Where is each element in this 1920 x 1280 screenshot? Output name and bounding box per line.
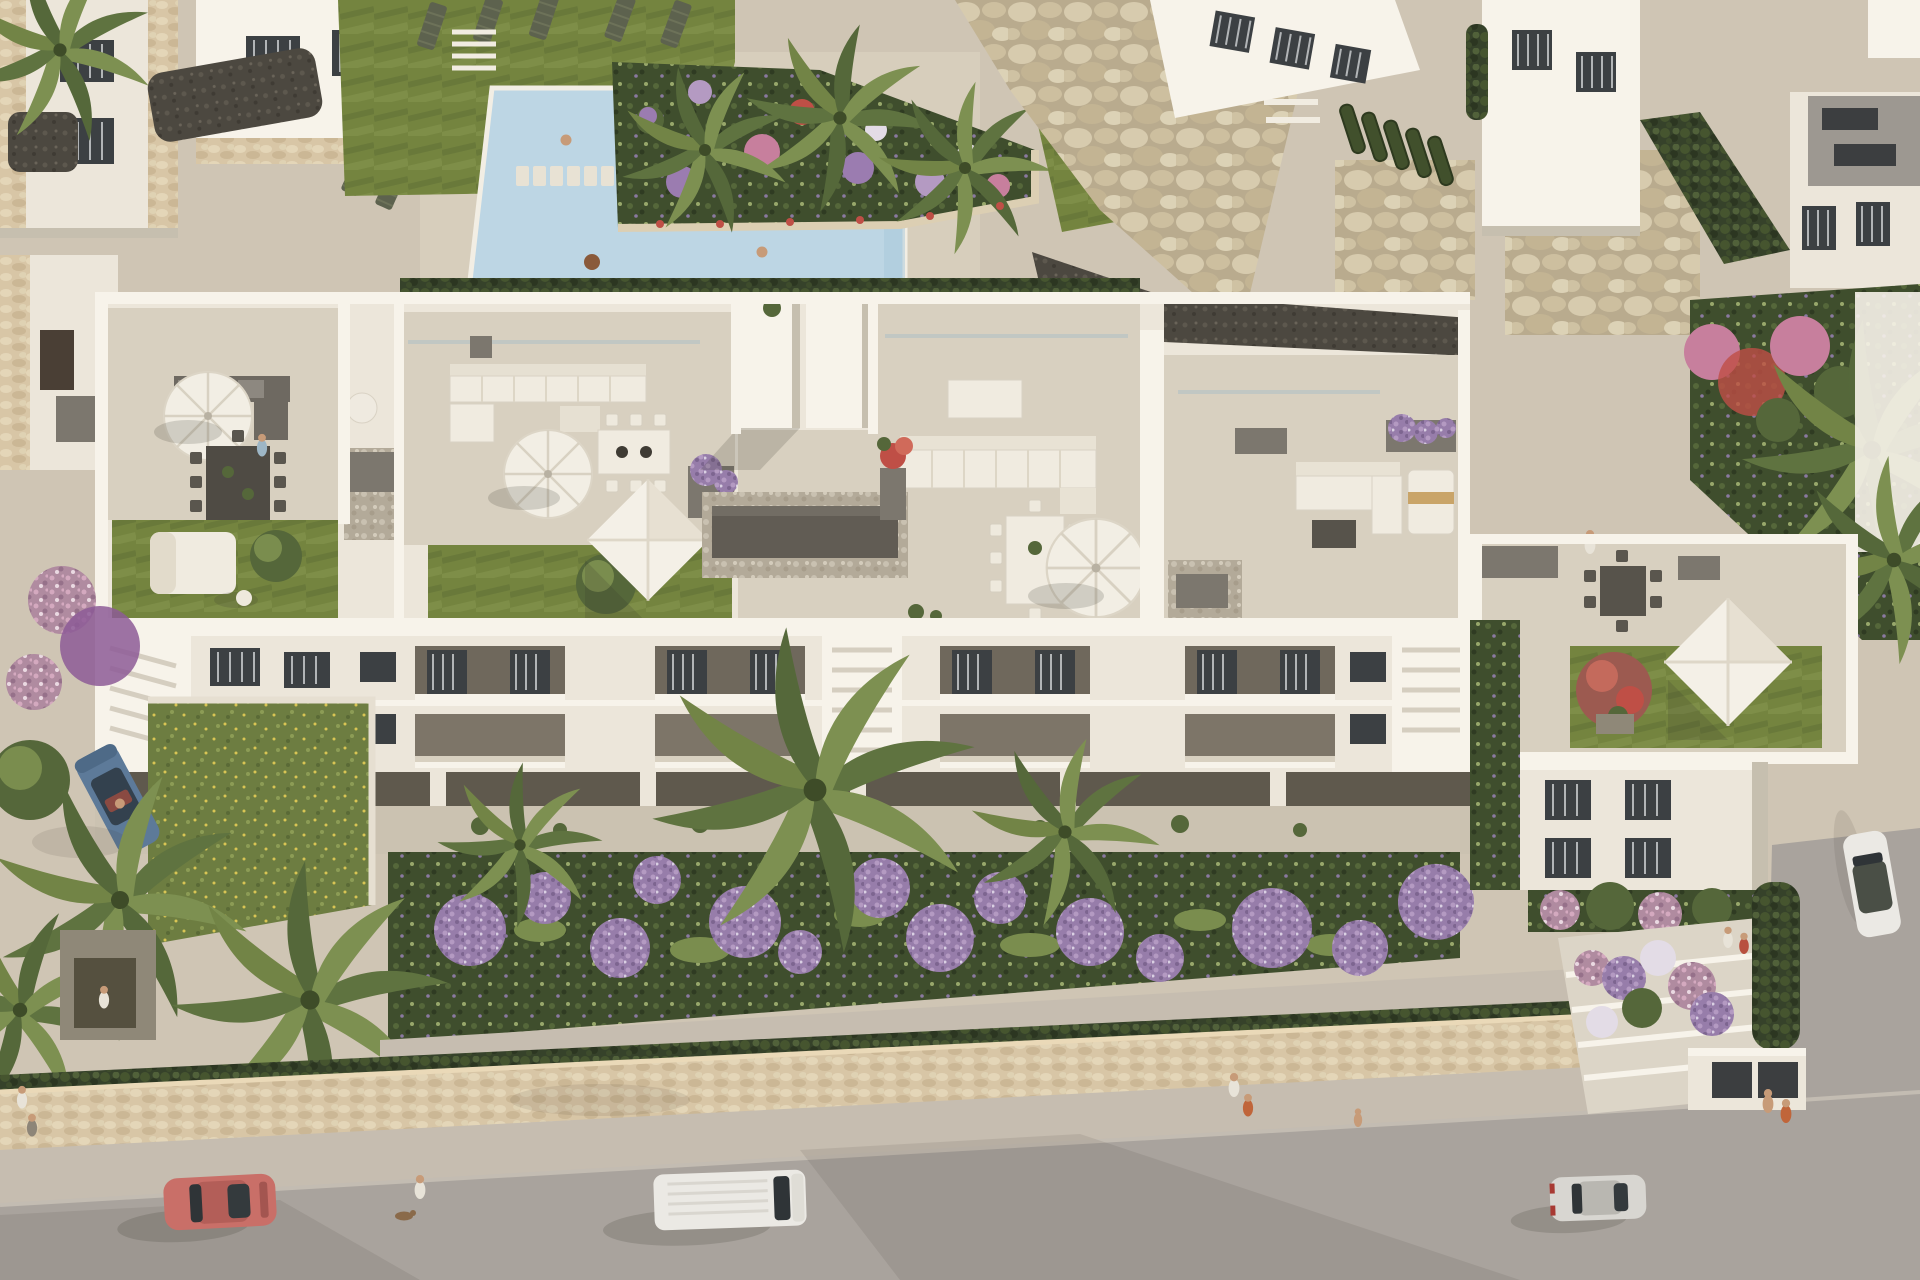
coffee-table-3 — [948, 380, 1022, 418]
dining-set-2 — [598, 414, 670, 492]
stairwell-right — [1392, 628, 1470, 778]
terrace-floor-3a — [875, 300, 1140, 440]
main-building — [95, 278, 1470, 640]
rock-wall-east — [1335, 160, 1475, 300]
bistro-table — [347, 393, 377, 423]
palm-shadow — [510, 1084, 690, 1116]
outdoor-kitchen — [1482, 546, 1558, 578]
gravel-bed-2 — [8, 112, 78, 172]
person-terrace-1 — [257, 434, 267, 457]
storage-box-1 — [348, 452, 394, 492]
planter-pot — [584, 254, 600, 270]
ottoman — [560, 406, 600, 432]
aerial-scene: Aerial 3D render of a white Mediterranea… — [0, 0, 1920, 1280]
side-table — [236, 590, 252, 606]
side-gap-garden — [1470, 620, 1520, 890]
pool-swimmer-1 — [561, 135, 572, 146]
building-c — [1790, 92, 1920, 288]
building-b — [1466, 0, 1640, 236]
bench-4 — [1235, 428, 1287, 454]
divider-wall — [1140, 330, 1164, 625]
right-facade — [1520, 762, 1768, 890]
gravel-patch-2 — [702, 492, 908, 578]
lounger-4 — [1408, 470, 1454, 534]
coffee-table-4 — [1312, 520, 1356, 548]
hedge-column-b — [1466, 24, 1488, 120]
gravel-patch-1 — [344, 448, 400, 540]
person-left-entry — [99, 986, 109, 1009]
terrace-lawn-1 — [112, 520, 338, 622]
aerial-render: Aerial 3D render of a white Mediterranea… — [0, 0, 1920, 1280]
pool-swimmer-2 — [757, 247, 768, 258]
hedge-column-entrance — [1752, 882, 1800, 1050]
